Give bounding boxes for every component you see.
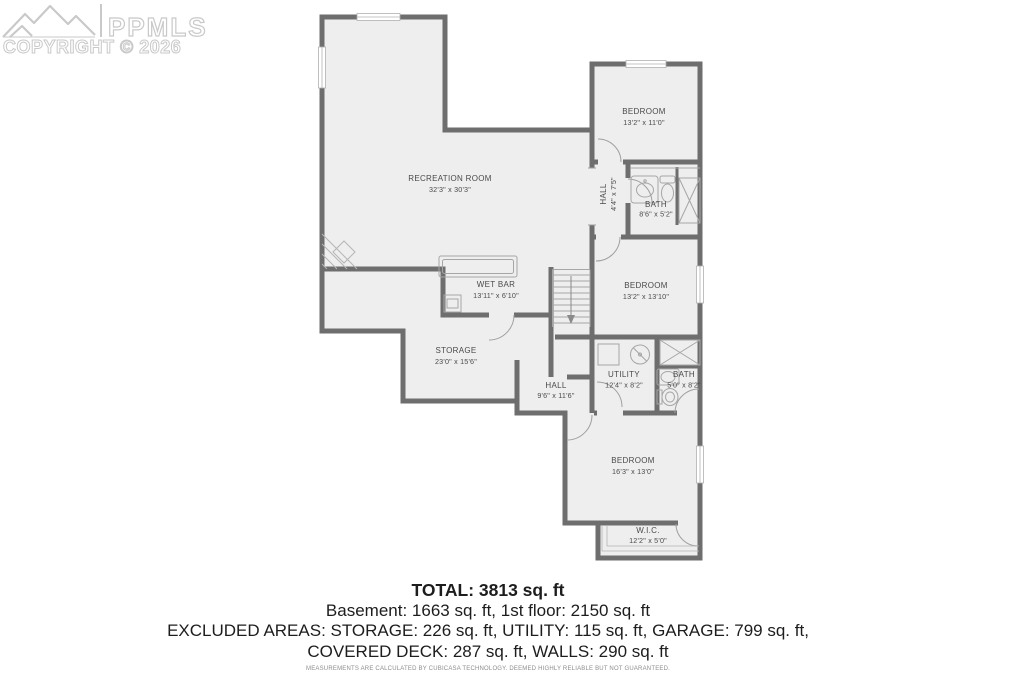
- excluded-areas-text-line1: EXCLUDED AREAS: STORAGE: 226 sq. ft, UTI…: [0, 621, 976, 642]
- svg-text:12'4" x 8'2": 12'4" x 8'2": [605, 381, 643, 390]
- svg-text:16'3" x 13'0": 16'3" x 13'0": [612, 467, 654, 476]
- svg-text:UTILITY: UTILITY: [608, 370, 640, 379]
- svg-text:5'0" x 8'2": 5'0" x 8'2": [667, 381, 701, 390]
- svg-text:RECREATION ROOM: RECREATION ROOM: [408, 174, 492, 183]
- mountain-logo-icon: [3, 6, 95, 37]
- excluded-areas-text-line2: COVERED DECK: 287 sq. ft, WALLS: 290 sq.…: [0, 642, 976, 663]
- room-label-utility: UTILITY 12'4" x 8'2": [605, 370, 643, 390]
- svg-text:STORAGE: STORAGE: [435, 346, 476, 355]
- svg-text:4'4" x 7'5": 4'4" x 7'5": [609, 177, 618, 211]
- watermark-copyright: COPYRIGHT © 2026: [3, 37, 181, 57]
- floor-areas-text: Basement: 1663 sq. ft, 1st floor: 2150 s…: [0, 601, 976, 622]
- svg-text:BATH: BATH: [645, 200, 667, 209]
- window: [626, 61, 666, 68]
- svg-text:WET BAR: WET BAR: [477, 280, 515, 289]
- svg-text:HALL: HALL: [545, 381, 566, 390]
- svg-text:13'2" x 13'10": 13'2" x 13'10": [623, 292, 669, 301]
- svg-text:13'2" x 11'0": 13'2" x 11'0": [623, 118, 665, 127]
- svg-text:12'2" x 5'0": 12'2" x 5'0": [629, 536, 667, 545]
- disclaimer-text: MEASUREMENTS ARE CALCULATED BY CUBICASA …: [0, 664, 976, 674]
- window: [697, 266, 704, 303]
- total-area-text: TOTAL: 3813 sq. ft: [0, 580, 976, 601]
- svg-text:W.I.C.: W.I.C.: [636, 526, 660, 535]
- svg-text:32'3" x 30'3": 32'3" x 30'3": [429, 185, 471, 194]
- svg-text:9'6" x 11'6": 9'6" x 11'6": [537, 391, 575, 400]
- floor-plan-page: RECREATION ROOM 32'3" x 30'3" WET BAR 13…: [0, 0, 1024, 682]
- svg-text:HALL: HALL: [599, 183, 608, 204]
- window: [697, 446, 704, 483]
- svg-text:13'11" x 6'10": 13'11" x 6'10": [473, 291, 519, 300]
- svg-text:BEDROOM: BEDROOM: [622, 107, 665, 116]
- area-summary-block: TOTAL: 3813 sq. ft Basement: 1663 sq. ft…: [0, 580, 976, 674]
- svg-text:BEDROOM: BEDROOM: [624, 281, 667, 290]
- svg-text:8'6" x 5'2": 8'6" x 5'2": [639, 210, 673, 219]
- watermark: PPMLS COPYRIGHT © 2026: [3, 4, 208, 57]
- svg-text:23'0" x 15'6": 23'0" x 15'6": [435, 357, 477, 366]
- svg-text:BATH: BATH: [673, 370, 695, 379]
- window: [319, 47, 326, 88]
- svg-text:BEDROOM: BEDROOM: [611, 456, 654, 465]
- window: [357, 14, 400, 21]
